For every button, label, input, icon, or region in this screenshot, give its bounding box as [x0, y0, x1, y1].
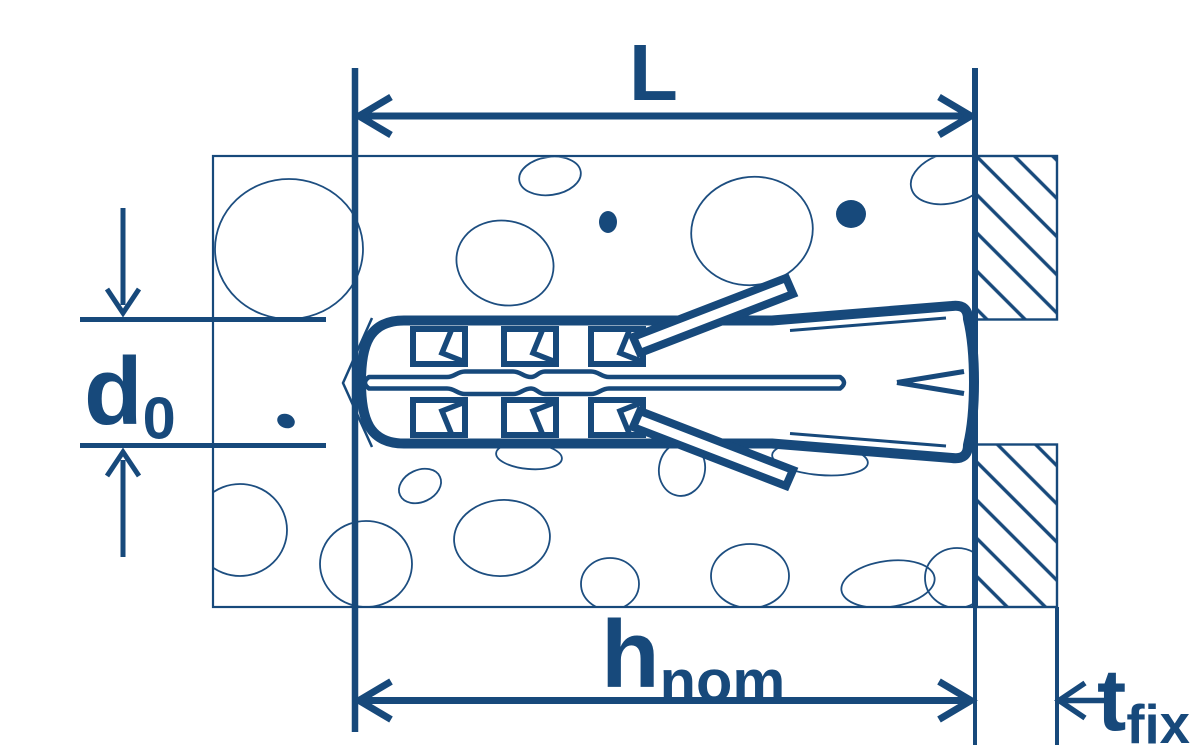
plug-windows-bottom	[413, 400, 643, 435]
hole-diameter-subscript: 0	[143, 384, 176, 451]
label-length: L	[629, 33, 678, 113]
fixture-thickness-symbol: t	[1097, 650, 1126, 749]
embedment-symbol: h	[601, 601, 660, 708]
anchor-cross-section-drawing	[0, 0, 1194, 748]
plug-expansion-slit	[365, 372, 844, 395]
label-fixture-thickness: tfix	[1097, 656, 1190, 753]
fixture-section	[975, 156, 1057, 607]
label-hole-diameter: d0	[84, 344, 176, 448]
diagram-canvas: L d0 hnom tfix	[0, 0, 1194, 748]
embedment-subscript: nom	[660, 647, 786, 714]
length-symbol: L	[629, 28, 678, 117]
hole-diameter-symbol: d	[84, 338, 143, 445]
fixture-thickness-subscript: fix	[1126, 694, 1190, 755]
label-embedment-depth: hnom	[601, 607, 785, 711]
plug-windows-top	[413, 329, 643, 364]
